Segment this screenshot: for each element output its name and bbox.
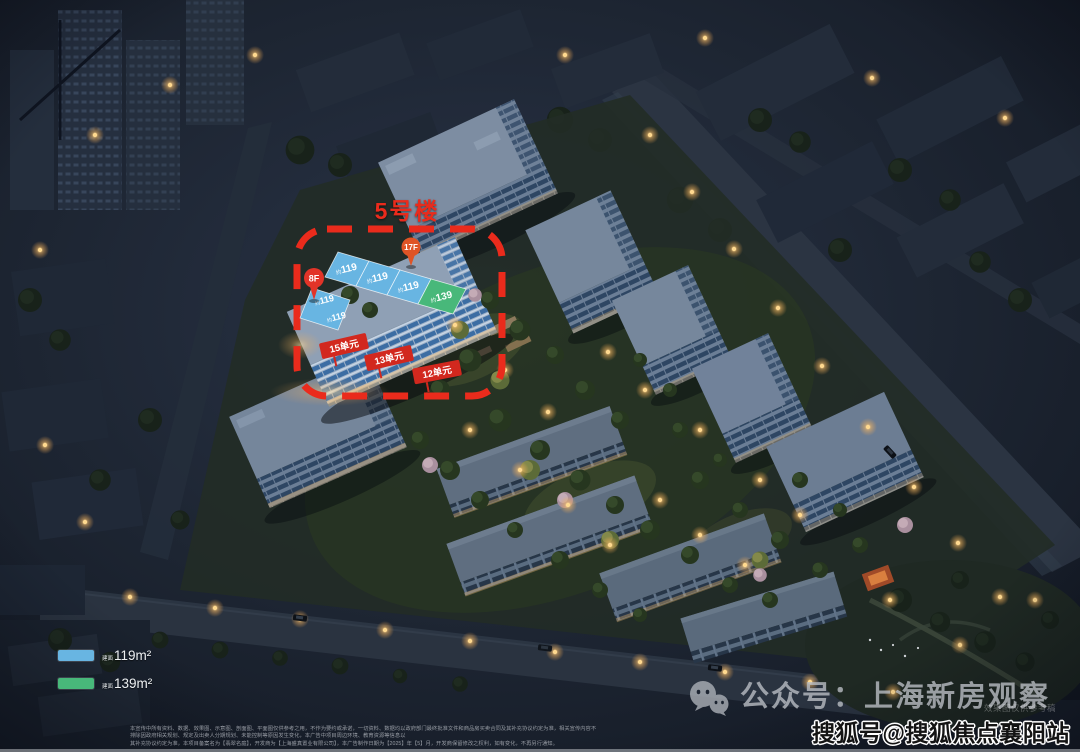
legend-label-119: 建面119m² [102,648,151,663]
legal-disclaimer: 本宣传中所有资料、数据、效果图、示意图、剖面图、平面图仅供参考之用，不作为要约或… [130,726,600,748]
render-note-watermark: 效果图仅供参考稿 [984,702,1056,714]
legend-item-119: 建面119m² [58,648,152,663]
area-type-legend: 建面119m² 建面139m² [58,648,152,704]
sohu-watermark: 搜狐号@搜狐焦点襄阳站 [812,714,1070,748]
legend-label-139: 建面139m² [102,676,152,691]
night-aerial-render [0,0,1080,752]
wechat-icon [688,680,732,718]
legend-swatch-119 [58,650,94,661]
disclaimer-line-2: 其补充协议约定为准，本项目备案名为【翡翠名庭】，开发商为【上海盛真置业有限公司】… [130,741,600,748]
legend-item-139: 建面139m² [58,676,152,691]
legend-swatch-139 [58,678,94,689]
disclaimer-line-1: 本宣传中所有资料、数据、效果图、示意图、剖面图、平面图仅供参考之用，不作为要约或… [130,726,600,741]
building-5-title: 5号楼 [352,192,462,226]
real-estate-night-aerial-poster: 约119 约119 约119 约139 约119 约119 8F 17F 15单… [0,0,1080,752]
